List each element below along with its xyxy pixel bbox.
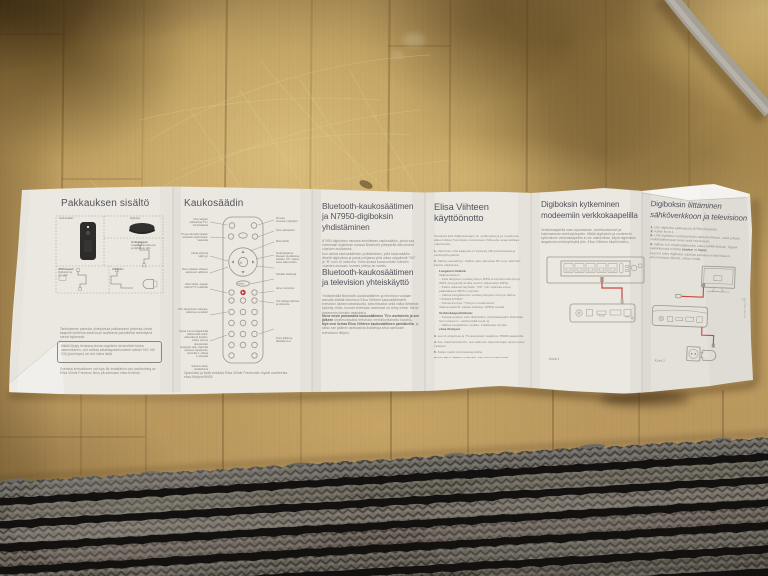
svg-text:OK: OK bbox=[238, 261, 243, 265]
svg-text:viihde: viihde bbox=[238, 282, 245, 286]
